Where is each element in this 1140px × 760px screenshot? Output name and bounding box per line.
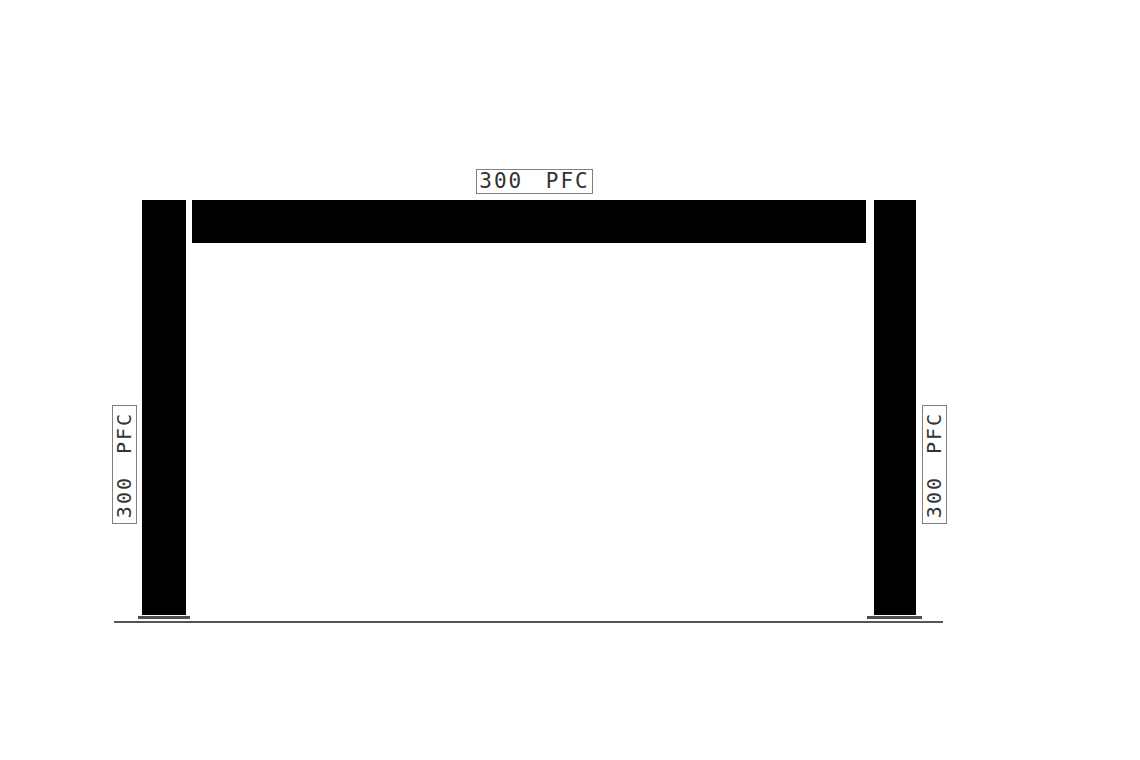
left-column-member [142, 200, 186, 615]
ground-line [114, 621, 943, 623]
left-column-label-box: 300 PFC [112, 405, 137, 524]
right-column-label-box: 300 PFC [922, 405, 947, 524]
beam-label-box: 300 PFC [476, 169, 593, 194]
beam-member [192, 200, 866, 243]
left-base-plate [138, 616, 190, 619]
right-column-label-text: 300 PFC [925, 411, 945, 517]
beam-label-text: 300 PFC [479, 171, 590, 192]
right-base-plate [867, 616, 922, 619]
right-column-member [874, 200, 916, 615]
structural-drawing-canvas: 300 PFC 300 PFC 300 PFC [0, 0, 1140, 760]
left-column-label-text: 300 PFC [115, 411, 135, 517]
